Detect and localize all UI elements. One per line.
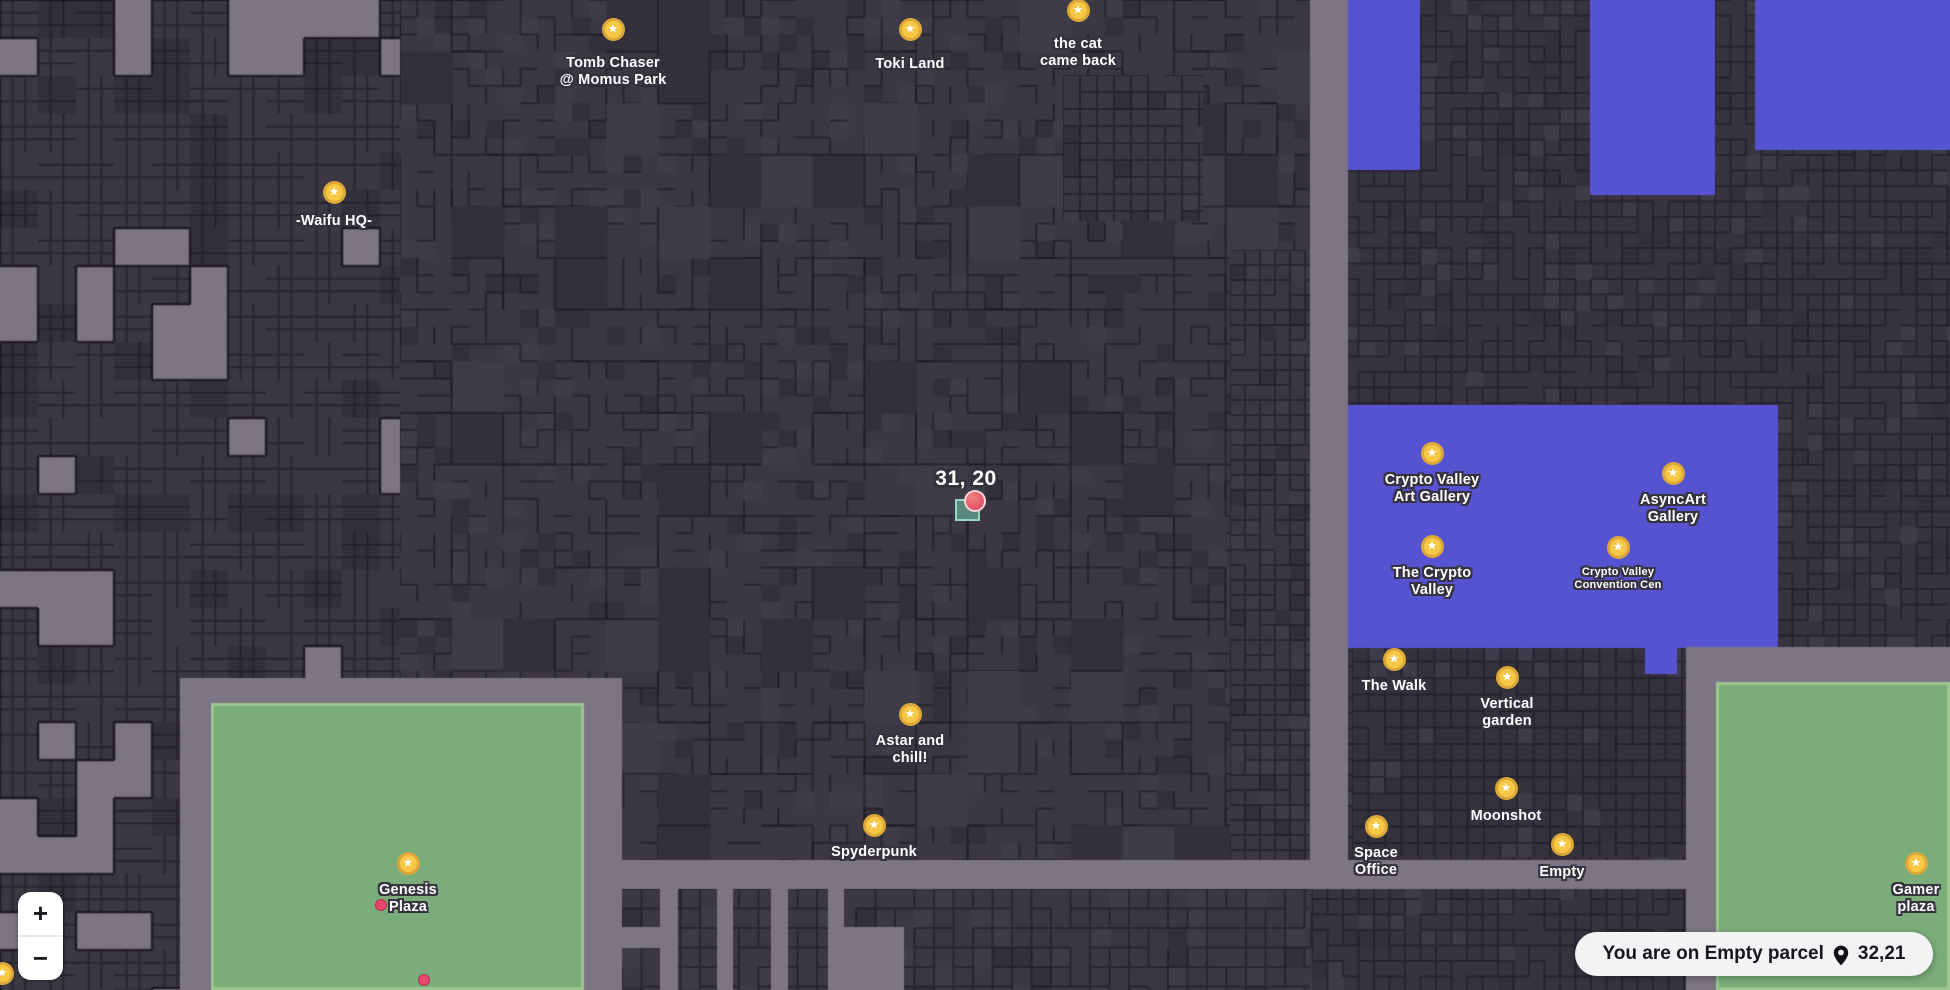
map-marker-moonshot[interactable]: ★ xyxy=(1495,777,1518,800)
star-icon: ★ xyxy=(403,857,414,869)
map-marker-asyncart-gallery[interactable]: ★ xyxy=(1662,462,1685,485)
map-marker-label-space-office: SpaceOffice xyxy=(1281,845,1471,879)
star-icon: ★ xyxy=(869,819,880,831)
star-icon: ★ xyxy=(905,23,916,35)
map-marker-label-vertical-garden: Verticalgarden xyxy=(1412,696,1602,730)
map-marker-label-tomb-chaser-momus-park: Tomb Chaser@ Momus Park xyxy=(518,55,708,89)
map-marker-label-genesis-plaza: GenesisPlaza xyxy=(313,882,503,916)
map-marker-label-astar-and-chill: Astar andchill! xyxy=(815,733,1005,767)
map-marker-tomb-chaser-momus-park[interactable]: ★ xyxy=(602,18,625,41)
map-marker-label-spyderpunk: Spyderpunk xyxy=(779,844,969,861)
star-icon: ★ xyxy=(1557,838,1568,850)
star-icon: ★ xyxy=(1613,541,1624,553)
map-marker-waifu-hq[interactable]: ★ xyxy=(323,181,346,204)
map-marker-label-waifu-hq: -Waifu HQ- xyxy=(239,213,429,230)
star-icon: ★ xyxy=(1389,653,1400,665)
map-marker-genesis-plaza[interactable]: ★ xyxy=(397,852,420,875)
map-marker-toki-land[interactable]: ★ xyxy=(899,18,922,41)
status-coordinates: 32,21 xyxy=(1858,943,1906,965)
map-marker-vertical-garden[interactable]: ★ xyxy=(1496,666,1519,689)
user-dot-1 xyxy=(418,974,430,986)
star-icon: ★ xyxy=(1668,467,1679,479)
map-marker-gamer-plaza[interactable]: ★ xyxy=(1905,852,1928,875)
map-marker-label-the-cat-came-back: the catcame back xyxy=(983,36,1173,70)
star-icon: ★ xyxy=(1073,4,1084,16)
star-icon: ★ xyxy=(1427,447,1438,459)
map-marker-crypto-valley-art-gallery[interactable]: ★ xyxy=(1421,442,1444,465)
star-icon: ★ xyxy=(329,186,340,198)
map-marker-label-empty: Empty xyxy=(1467,864,1657,881)
map-marker-label-crypto-valley-art-gallery: Crypto ValleyArt Gallery xyxy=(1337,472,1527,506)
star-icon: ★ xyxy=(608,23,619,35)
map-marker-label-the-walk: The Walk xyxy=(1299,678,1489,695)
status-bar: You are on Empty parcel 32,21 xyxy=(1575,932,1933,976)
star-icon: ★ xyxy=(0,967,7,979)
current-position-coordinates: 31, 20 xyxy=(886,467,1046,491)
star-icon: ★ xyxy=(1501,782,1512,794)
map-marker-label-the-crypto-valley: The CryptoValley xyxy=(1337,565,1527,599)
star-icon: ★ xyxy=(1427,540,1438,552)
map-marker-label-asyncart-gallery: AsyncArtGallery xyxy=(1578,492,1768,526)
zoom-control: + − xyxy=(18,892,63,980)
location-pin-icon xyxy=(1833,945,1849,966)
map-marker-label-gamer-plaza: Gamerplaza xyxy=(1821,882,1950,916)
map-marker-empty[interactable]: ★ xyxy=(1551,833,1574,856)
star-icon: ★ xyxy=(905,708,916,720)
zoom-in-button[interactable]: + xyxy=(18,892,63,935)
map-marker-astar-and-chill[interactable]: ★ xyxy=(899,703,922,726)
current-position-dot xyxy=(964,490,986,512)
map-marker-label-toki-land: Toki Land xyxy=(815,56,1005,73)
map-marker-label-moonshot: Moonshot xyxy=(1411,808,1601,825)
star-icon: ★ xyxy=(1371,820,1382,832)
star-icon: ★ xyxy=(1502,671,1513,683)
map-marker-space-office[interactable]: ★ xyxy=(1365,815,1388,838)
map-marker-spyderpunk[interactable]: ★ xyxy=(863,814,886,837)
map-marker-label-crypto-valley-convention-cen: Crypto ValleyConvention Cen xyxy=(1523,566,1713,592)
map-marker-the-crypto-valley[interactable]: ★ xyxy=(1421,535,1444,558)
map-marker-the-walk[interactable]: ★ xyxy=(1383,648,1406,671)
map-marker-the-cat-came-back[interactable]: ★ xyxy=(1067,0,1090,22)
zoom-out-button[interactable]: − xyxy=(18,935,63,980)
map-stage[interactable]: 31, 20 + − You are on Empty parcel 32,21… xyxy=(0,0,1950,990)
status-message: You are on Empty parcel xyxy=(1603,943,1824,965)
map-marker-crypto-valley-convention-cen[interactable]: ★ xyxy=(1607,536,1630,559)
star-icon: ★ xyxy=(1911,857,1922,869)
